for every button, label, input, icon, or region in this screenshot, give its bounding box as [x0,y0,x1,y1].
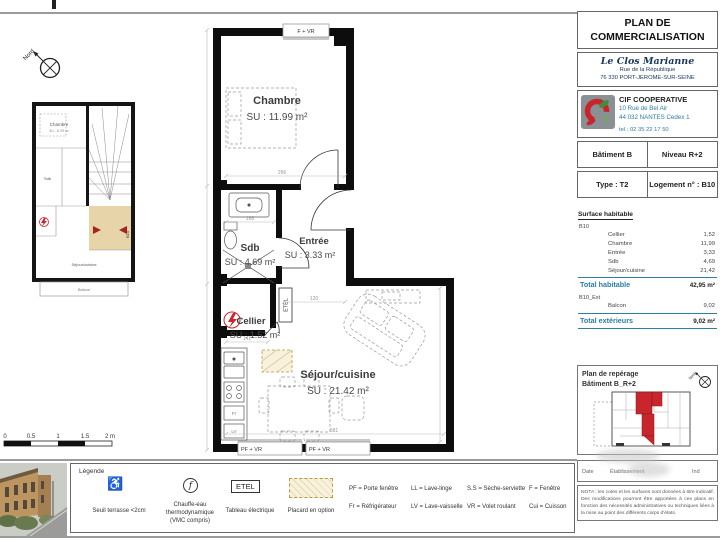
row-value: 4,69 [704,259,715,265]
north-compass-icon: Nord [23,49,60,78]
total-habitable-row: Total habitable 42,95 m² [578,277,717,292]
company-phone: tel : 02 35 22 17 50 [619,127,690,133]
abbr-cui: Cui = Cuisson [529,504,567,510]
mini-unit-label: B10 [125,230,130,238]
chauffe-line2: thermodynamique [159,510,221,518]
sheet-title-line1: PLAN DE [580,17,715,31]
surface-row: Séjour/cuisine 21,42 [578,266,717,275]
abbr-ss: S.S = Sèche-serviette [467,486,525,492]
row-value: 21,42 [700,268,715,274]
mini-sdb-label: Sdb [44,176,52,181]
legend-box: Légende ♿ Seuil terrasse <2cm f Chauffe-… [70,463,575,533]
surface-group-ext: B10_Ext [579,295,717,301]
mini-electric-flash-icon [40,218,49,228]
watermark-smudge [628,462,670,477]
scale-1: 1 [56,434,60,440]
legend-etel-label: Tableau électrique [221,508,279,516]
total-exterieurs-row: Total extérieurs 9,02 m² [578,313,717,329]
mini-chambre-label: Chambre [50,122,69,127]
dim-sdb: 168 [246,216,255,222]
company-name: CIF COOPERATIVE [619,95,690,104]
overview-mini-plan: B10 Balcon Chambre SU : 11.99 m² Sdb Séj… [32,102,135,296]
legend-placard-label: Placard en option [285,508,337,516]
abbr-lv: LV = Lave-vaisselle [411,504,463,510]
kitchen-counter: Fr LV [221,348,247,440]
abbr-fr: Fr = Réfrigérateur [349,504,397,510]
sheet-title: PLAN DE COMMERCIALISATION [577,11,718,49]
bathroom-fixtures [223,193,274,283]
mini-sejour-label: Séjour/cuisine [71,262,97,267]
surface-table: Surface habitable B10 Cellier 1,52 Chamb… [577,203,718,329]
chambre-name: Chambre [253,95,301,107]
plan-sheet: Nord B10 [0,0,720,540]
window-br-label: PF + VR [309,447,330,453]
dim-sejour: 581 [330,428,339,434]
sheet-bottom-rule [0,536,720,538]
surface-row: Balcon 9,02 [578,302,717,311]
legend-seuil-label: Seuil terrasse <2cm [75,508,163,516]
company-address-2: 44 032 NANTES Cedex 1 [619,114,690,122]
row-label: Entrée [608,250,625,256]
surface-row: Chambre 11,99 [578,240,717,249]
row-label: Cellier [608,232,625,238]
stairs [89,106,131,200]
surface-header: Surface habitable [578,211,633,220]
row-value: 11,99 [701,241,715,247]
ext-total-label: Total extérieurs [580,316,633,325]
total-label: Total habitable [580,280,630,289]
legend-chauffe-eau-label: Chauffe-eau thermodynamique (VMC compris… [159,502,221,525]
abbr-f: F = Fenêtre [529,486,560,492]
chambre-su: SU : 11.99 m² [247,112,309,123]
sdb-name: Sdb [241,243,260,254]
cellier-su: SU : 1.52 m² [230,330,281,340]
north-label: Nord [23,49,36,62]
row-label: Chambre [608,241,632,247]
surface-row: Sdb 4,69 [578,257,717,266]
building-photo [0,463,67,536]
scale-0: 0 [3,434,7,440]
row-label: Séjour/cuisine [608,268,645,274]
abbr-ll: LL = Lave-linge [411,486,452,492]
surface-row: Cellier 1,52 [578,231,717,240]
mini-chambre-su: SU : 11.99 m² [49,129,68,133]
scale-05: 0.5 [27,434,36,440]
legend-top-rule [0,459,577,461]
fold-mark [52,0,56,9]
company-box: CIF COOPERATIVE 10 Rue de Bel Air 44 032… [577,90,718,138]
abbr-vr: VR = Volet roulant [467,504,516,510]
row-label: Sdb [608,259,618,265]
chauffe-line1: Chauffe-eau [159,502,221,510]
floor-plan-canvas: Nord B10 [0,0,578,460]
etel-panel: ETEL [279,288,292,322]
chauffe-line3: (VMC compris) [159,518,221,526]
row-label: Balcon [608,303,626,309]
etel-legend-icon: ETEL [231,480,260,493]
surface-row: Entrée 3,33 [578,249,717,258]
entree-name: Entrée [299,236,329,247]
cellier-name: Cellier [236,316,265,327]
sdb-su: SU : 4.69 m² [225,257,276,267]
abbr-pf: PF = Porte fenêtre [349,486,398,492]
placard-option [262,350,292,372]
dim-chambre: 296 [278,170,287,176]
legend-title: Légende [79,468,104,475]
placard-swatch-icon [289,478,333,498]
watermark-smudge [596,449,660,463]
row-value: 9,02 [704,303,715,309]
type-unit-row: Type : T2 Logement n° : B10 [577,171,718,198]
row-value: 3,33 [704,250,715,256]
reperage-box: Plan de repérage Bâtiment B_R+2 Nord [577,365,718,455]
chauffe-eau-icon: f [183,478,198,493]
building-cell: Bâtiment B [578,142,648,167]
total-value: 42,95 m² [690,282,715,289]
kitchen-lv-label: LV [231,429,236,434]
title-block-panel: PLAN DE COMMERCIALISATION Le Clos Marian… [577,11,718,521]
kitchen-fr-label: Fr [232,411,237,416]
mini-balcon-label: Balcon [78,287,90,292]
sejour-su: SU : 21.42 m² [307,386,369,397]
sheet-title-line2: COMMERCIALISATION [580,31,715,45]
cif-logo [581,95,615,129]
row-value: 1,52 [704,232,715,238]
entree-su: SU : 3.33 m² [285,250,336,260]
type-cell: Type : T2 [578,172,648,197]
project-address-1: Rue de la République [580,67,715,75]
window-bl-label: PF + VR [241,447,262,453]
dim-entree: 120 [310,296,319,302]
project-box: Le Clos Marianne Rue de la République 76… [577,52,718,87]
reperage-map [592,390,696,450]
company-info: CIF COOPERATIVE 10 Rue de Bel Air 44 032… [619,95,690,133]
building-level-row: Bâtiment B Niveau R+2 [577,141,718,168]
reperage-north-label: Nord [688,372,697,381]
date-label: Date [582,469,594,475]
scale-2: 2 m [105,434,115,440]
ind-label: Ind [692,469,700,475]
project-name: Le Clos Marianne [580,56,715,67]
surface-group-b10: B10 [579,224,717,230]
etel-label: ETEL [284,298,290,312]
sejour-name: Séjour/cuisine [300,369,375,381]
wheelchair-icon: ♿ [107,476,123,492]
scale-bar: 0 0.5 1 1.5 2 m [3,434,115,446]
level-cell: Niveau R+2 [648,142,718,167]
project-address-2: 76 330 PORT-JEROME-SUR-SEINE [580,75,715,83]
scale-15: 1.5 [81,434,90,440]
window-top-label: F + VR [297,29,314,35]
ext-total-value: 9,02 m² [693,318,715,325]
company-address-1: 10 Rue de Bel Air [619,105,690,113]
apartment-plan: F + VR PF + VR PF + VR [205,24,454,455]
nota-box: NOTA : les cotes et les surfaces sont do… [577,485,718,521]
date-row: Date Établissement Ind [577,460,718,482]
unit-cell: Logement n° : B10 [648,172,718,197]
